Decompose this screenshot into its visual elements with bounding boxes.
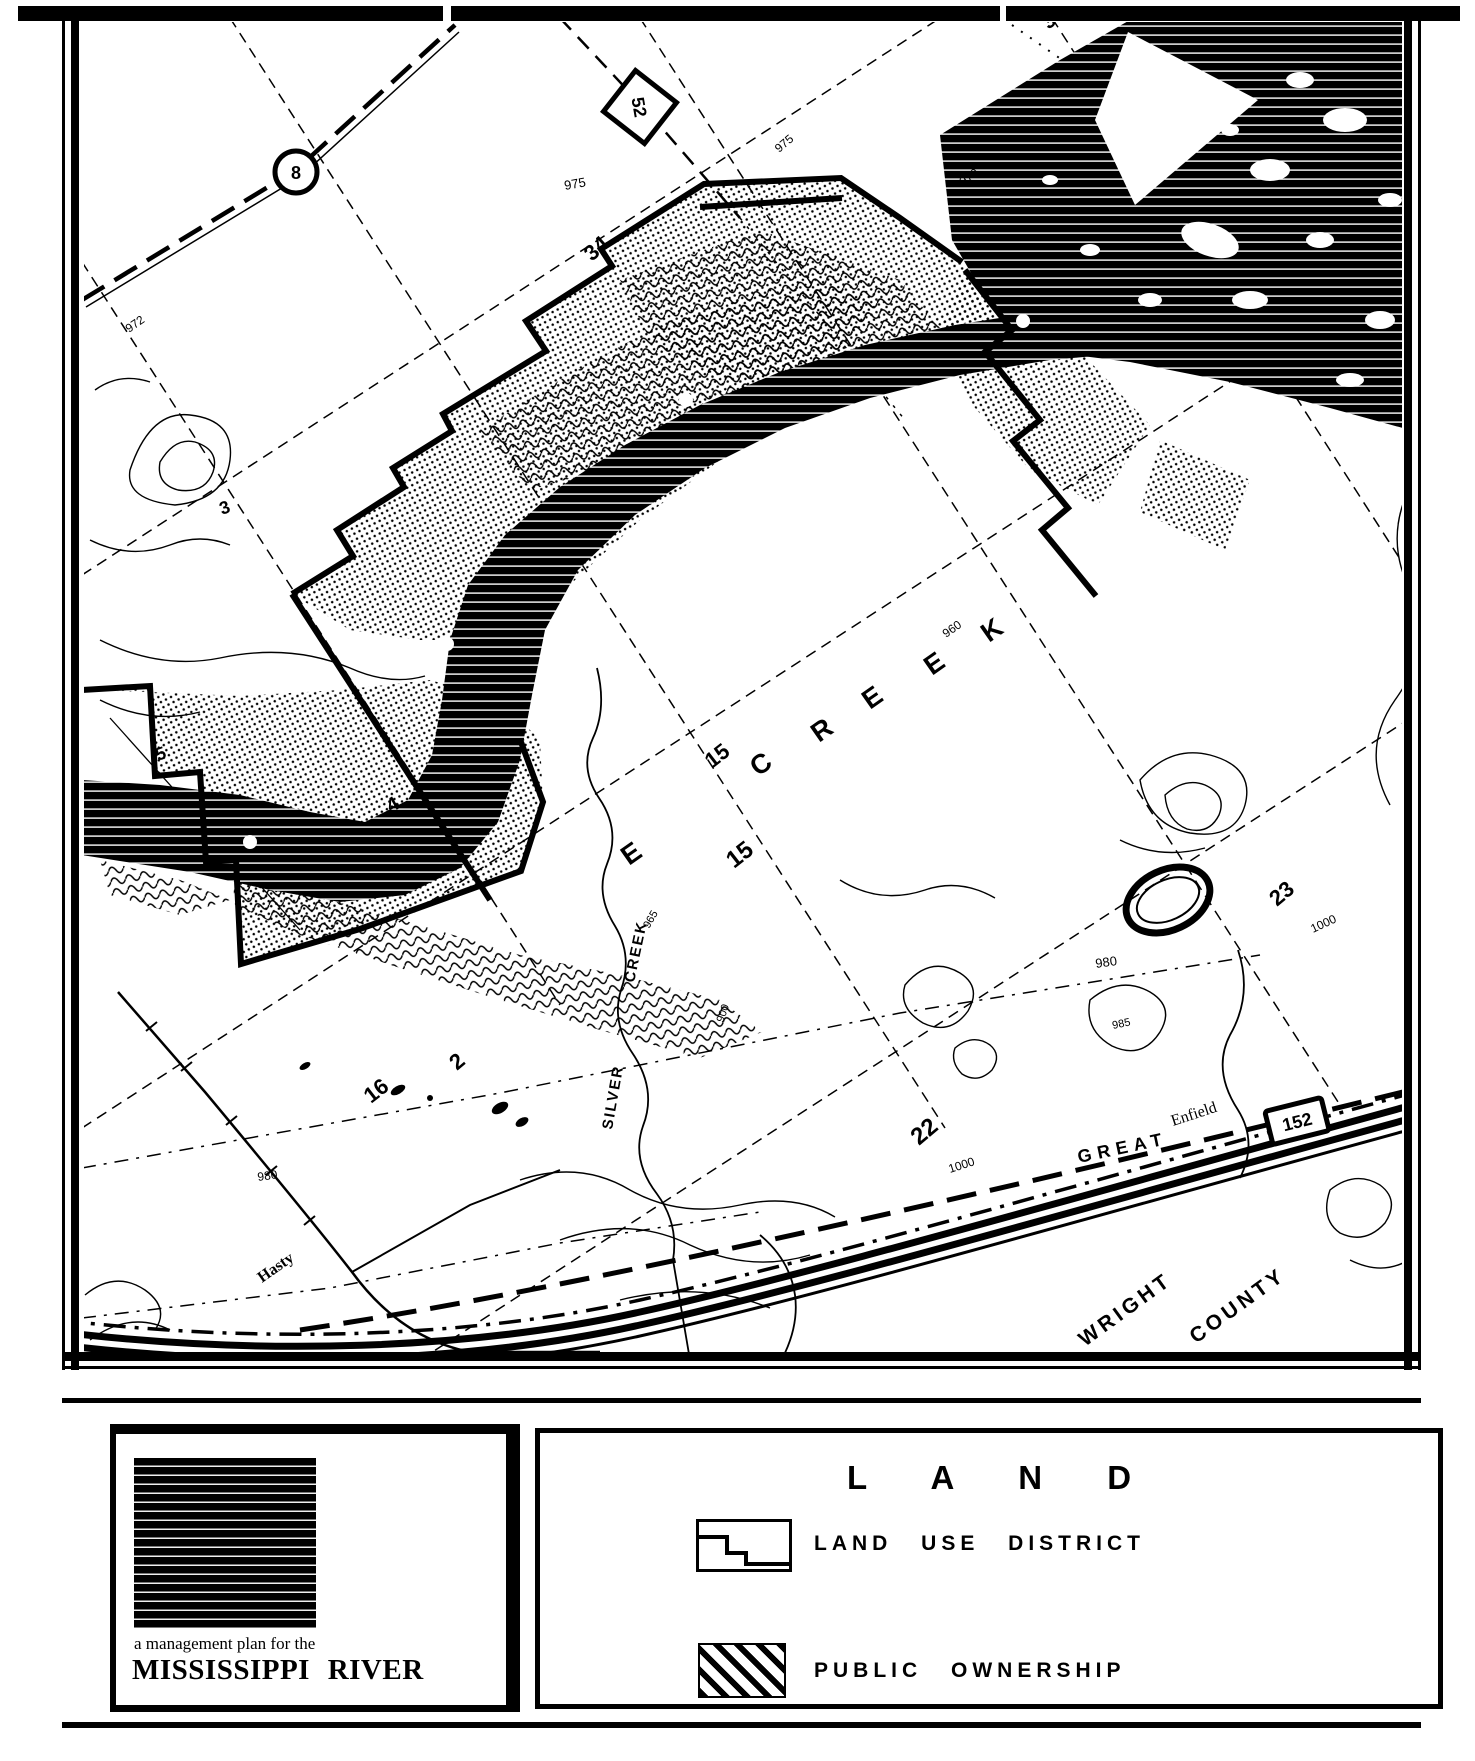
map-label: 985 — [1111, 1016, 1131, 1032]
route-marker-8: 8 — [275, 151, 317, 193]
page: { "brand_panel": { "tagline": "a managem… — [0, 0, 1475, 1761]
map-label: Hasty — [255, 1249, 298, 1286]
district-boundary-icon — [699, 1522, 789, 1569]
legend-panel: L A N D LAND USE DISTRICT PUBLIC OWNERSH… — [535, 1428, 1443, 1709]
map-label: 980 — [256, 1167, 278, 1184]
brand-panel: a management plan for the MISSISSIPPI RI… — [110, 1424, 520, 1712]
public-ownership-symbol — [698, 1643, 786, 1698]
land-use-district-symbol — [696, 1519, 792, 1572]
township-boundary-road — [82, 25, 455, 300]
local-road — [352, 1170, 560, 1272]
legend-label-land-use-district: LAND USE DISTRICT — [814, 1532, 1145, 1556]
map-label: 1000 — [947, 1154, 977, 1176]
map-label: 980 — [1094, 953, 1118, 971]
map-label: E — [918, 646, 950, 681]
route-marker-number: 52 — [627, 96, 650, 119]
map-label: 16 — [359, 1073, 394, 1108]
map-label: WRIGHT — [1074, 1268, 1176, 1351]
map-label: 15 — [721, 836, 759, 874]
brand-tagline: a management plan for the — [134, 1634, 315, 1654]
brand-logo-square — [134, 1458, 316, 1628]
local-road — [118, 992, 600, 1352]
map-label: COUNTY — [1185, 1263, 1290, 1348]
map-label: C — [744, 746, 777, 782]
map-label: CREEK — [621, 919, 651, 984]
map-label: E — [856, 680, 888, 715]
route-marker-152: 152 — [1265, 1097, 1330, 1144]
legend-title: L A N D — [540, 1459, 1438, 1497]
map-label: 23 — [1264, 876, 1299, 911]
map-label: 975 — [772, 131, 797, 155]
map-label: 1000 — [1308, 912, 1338, 936]
map-label: 15 — [700, 738, 735, 773]
map-label: K — [975, 612, 1009, 648]
map-label: SILVER — [599, 1064, 627, 1131]
map-label: 960 — [940, 617, 965, 640]
ponds — [298, 1060, 530, 1129]
map-label: 2 — [444, 1048, 469, 1075]
map-label: Enfield — [1169, 1099, 1219, 1130]
route-marker-number: 8 — [291, 163, 301, 183]
map-label: 975 — [563, 174, 587, 193]
map-label: 3 — [217, 497, 233, 519]
map-label: R — [805, 712, 838, 748]
brand-title: MISSISSIPPI RIVER — [132, 1654, 424, 1687]
map-label: 22 — [906, 1113, 944, 1151]
route-marker-52: 52 — [604, 71, 677, 144]
legend-label-public-ownership: PUBLIC OWNERSHIP — [814, 1659, 1126, 1683]
highway-line — [60, 1105, 1460, 1359]
map-label: E — [615, 836, 647, 871]
